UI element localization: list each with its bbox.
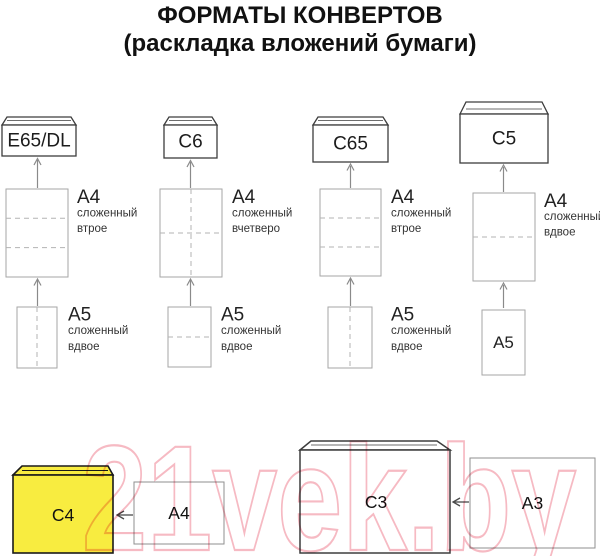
a4-fold-desc-line1: сложенный bbox=[232, 208, 292, 220]
arrow-up-icon bbox=[187, 279, 194, 306]
bottom-row-c3: C3 A3 bbox=[300, 441, 595, 553]
a3-size-label: A3 bbox=[522, 493, 543, 513]
a5-fold-desc-line1: сложенный bbox=[391, 325, 451, 337]
arrow-left-icon bbox=[453, 498, 469, 506]
a4-fold-desc-line2: вчетверо bbox=[232, 223, 280, 235]
a5-size-label: A5 bbox=[493, 333, 514, 352]
envelope-c3-label: C3 bbox=[365, 492, 387, 512]
envelope-c3-flap bbox=[300, 441, 450, 450]
a4-fold-desc-line1: сложенный bbox=[391, 208, 451, 220]
envelope-e65dl-flap bbox=[2, 117, 76, 125]
envelope-c65-flap bbox=[313, 117, 388, 125]
envelope-c6-flap bbox=[164, 117, 217, 125]
a4-size-label: A4 bbox=[77, 187, 101, 208]
a5-size-label: A5 bbox=[391, 305, 414, 326]
envelope-formats-diagram: E65/DL A4 сложенный втрое A5 сложенный в… bbox=[0, 0, 600, 556]
a4-fold-desc-line2: вдвое bbox=[544, 227, 575, 239]
bottom-row-c4: C4 A4 bbox=[13, 466, 224, 553]
a4-size-label: A4 bbox=[391, 187, 415, 208]
a5-fold-desc-line1: сложенный bbox=[221, 325, 281, 337]
column-e65dl: E65/DL A4 сложенный втрое A5 сложенный в… bbox=[2, 117, 137, 368]
envelope-c4-label: C4 bbox=[52, 505, 75, 525]
a4-folded-in-three-paper bbox=[320, 189, 381, 276]
column-c5: C5 A4 сложенный вдвое A5 bbox=[460, 102, 600, 375]
a4-fold-desc-line1: сложенный bbox=[77, 208, 137, 220]
a4-size-label: A4 bbox=[232, 187, 256, 208]
a5-fold-desc-line2: вдвое bbox=[68, 341, 99, 353]
a4-size-label: A4 bbox=[168, 503, 190, 523]
column-c6: C6 A4 сложенный вчетверо A5 сложенный вд… bbox=[160, 117, 292, 367]
a4-fold-desc-line2: втрое bbox=[391, 223, 421, 235]
arrow-left-icon bbox=[117, 511, 133, 519]
column-c65: C65 A4 сложенный втрое A5 сложенный вдво… bbox=[313, 117, 451, 368]
a4-fold-desc-line1: сложенный bbox=[544, 211, 600, 223]
arrow-up-icon bbox=[500, 165, 507, 192]
envelope-c5-flap bbox=[460, 102, 548, 114]
arrow-up-icon bbox=[187, 161, 194, 189]
a5-size-label: A5 bbox=[68, 305, 91, 326]
a5-size-label: A5 bbox=[221, 305, 244, 326]
a5-fold-desc-line2: вдвое bbox=[391, 341, 422, 353]
envelope-c6-label: C6 bbox=[178, 132, 202, 153]
page-root: ФОРМАТЫ КОНВЕРТОВ (раскладка вложений бу… bbox=[0, 0, 600, 556]
arrow-up-icon bbox=[347, 164, 354, 188]
a4-fold-desc-line2: втрое bbox=[77, 223, 107, 235]
envelope-c65-label: C65 bbox=[333, 134, 368, 155]
arrow-up-icon bbox=[500, 283, 507, 308]
a5-fold-desc-line2: вдвое bbox=[221, 341, 252, 353]
a4-size-label: A4 bbox=[544, 191, 568, 212]
a5-fold-desc-line1: сложенный bbox=[68, 325, 128, 337]
arrow-up-icon bbox=[347, 278, 354, 306]
a4-folded-in-three-paper bbox=[6, 189, 68, 277]
envelope-e65dl-label: E65/DL bbox=[7, 131, 70, 152]
arrow-up-icon bbox=[34, 159, 41, 189]
arrow-up-icon bbox=[34, 279, 41, 306]
envelope-c5-label: C5 bbox=[492, 129, 516, 150]
